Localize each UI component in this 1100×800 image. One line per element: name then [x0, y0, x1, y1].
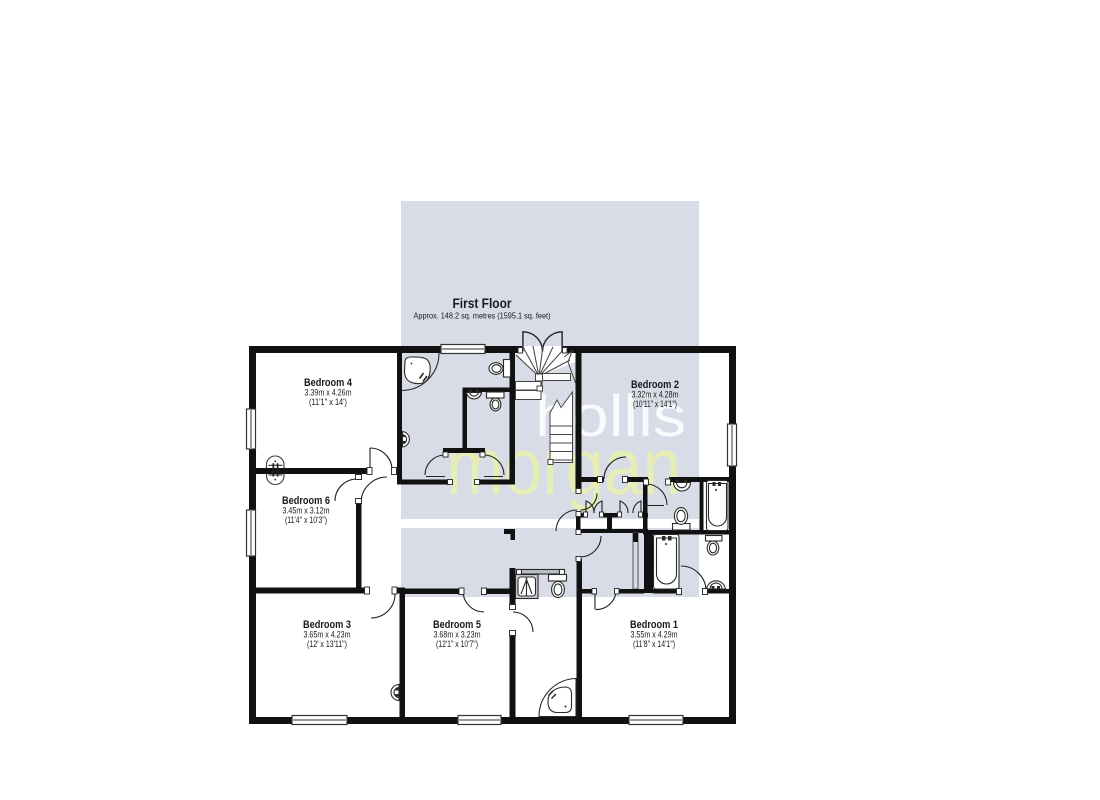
svg-text:First Floor: First Floor	[453, 296, 513, 311]
svg-text:3.39m x 4.26m: 3.39m x 4.26m	[305, 388, 352, 398]
svg-text:3.68m x 3.23m: 3.68m x 3.23m	[434, 630, 481, 640]
svg-text:3.55m x 4.29m: 3.55m x 4.29m	[631, 630, 678, 640]
svg-text:(11'1" x 14'): (11'1" x 14')	[309, 397, 347, 407]
svg-text:(11'8" x 14'1"): (11'8" x 14'1")	[633, 639, 675, 649]
svg-text:3.45m x 3.12m: 3.45m x 3.12m	[283, 506, 330, 516]
svg-text:Approx. 148.2 sq. metres (1595: Approx. 148.2 sq. metres (1595.1 sq. fee…	[414, 312, 551, 321]
svg-text:(10'11" x 14'1"): (10'11" x 14'1")	[633, 399, 677, 409]
svg-text:(12' x 13'11"): (12' x 13'11")	[307, 639, 347, 649]
svg-text:3.65m x 4.23m: 3.65m x 4.23m	[304, 630, 351, 640]
svg-text:(11'4" x 10'3"): (11'4" x 10'3")	[285, 515, 327, 525]
svg-text:(12'1" x 10'7"): (12'1" x 10'7")	[436, 639, 478, 649]
svg-text:3.32m x 4.28m: 3.32m x 4.28m	[632, 390, 679, 400]
